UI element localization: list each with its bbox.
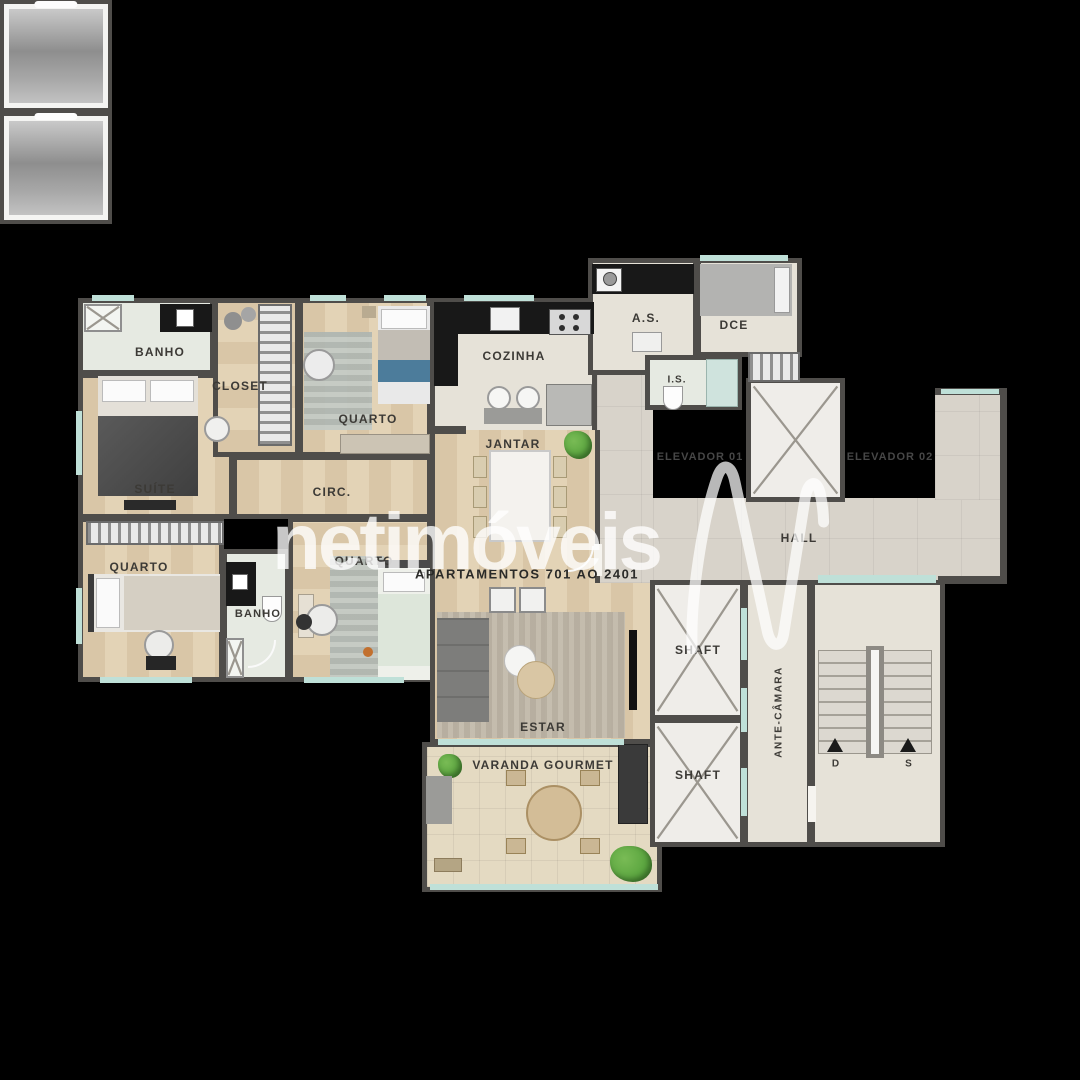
window-sill bbox=[384, 295, 426, 301]
console bbox=[146, 656, 176, 670]
bed-blanket bbox=[124, 576, 220, 630]
bag bbox=[296, 614, 312, 630]
sink bbox=[232, 574, 248, 590]
room-label-jantar: JANTAR bbox=[486, 437, 541, 451]
x-brace-icon bbox=[228, 640, 242, 676]
armchair bbox=[519, 587, 546, 613]
sink bbox=[176, 309, 194, 327]
room-label-banho-2: BANHO bbox=[235, 608, 281, 620]
hall-bottom-wall bbox=[938, 576, 1007, 584]
stove bbox=[549, 309, 591, 335]
outdoor-chair bbox=[506, 838, 526, 854]
room-label-as: A.S. bbox=[632, 311, 660, 325]
stair-flight-left bbox=[818, 650, 868, 754]
bed-pillow bbox=[774, 267, 790, 313]
dresser bbox=[340, 434, 430, 454]
window-sill bbox=[92, 295, 134, 301]
window-sill bbox=[76, 411, 82, 475]
sink bbox=[490, 307, 520, 331]
stairs-up-arrow-icon bbox=[900, 738, 916, 752]
outdoor-chair bbox=[506, 770, 526, 786]
stool bbox=[487, 386, 511, 410]
closet-pouf bbox=[224, 312, 242, 330]
window-sill bbox=[700, 255, 788, 261]
stairs-down-label: D bbox=[832, 759, 840, 770]
armchair bbox=[489, 587, 516, 613]
bed-pillow bbox=[381, 309, 427, 329]
bed-headboard bbox=[88, 574, 94, 632]
outdoor-table bbox=[526, 785, 582, 841]
room-label-elevador-2: ELEVADOR 02 bbox=[847, 451, 934, 463]
plant-icon bbox=[564, 431, 592, 459]
floor-plan-image: BANHO CLOSET QUARTO SUÍTE CIRC. QUARTO B… bbox=[0, 0, 1080, 1080]
coffee-table bbox=[517, 661, 555, 699]
bed-pillow bbox=[96, 578, 120, 628]
window-sill bbox=[941, 389, 999, 394]
x-brace-icon bbox=[86, 306, 120, 330]
room-label-cozinha: COZINHA bbox=[482, 349, 545, 363]
shower-box bbox=[226, 638, 244, 678]
window-sill bbox=[818, 575, 936, 583]
hall-right-wing bbox=[935, 390, 1005, 500]
dce-wardrobe bbox=[748, 352, 800, 382]
room-label-estar: ESTAR bbox=[520, 720, 566, 734]
room-label-suite: SUÍTE bbox=[134, 482, 175, 496]
room-label-quarto-2: QUARTO bbox=[110, 560, 169, 574]
kitchen-counter bbox=[434, 334, 458, 386]
tv-console bbox=[124, 500, 176, 510]
closet-wardrobe bbox=[258, 304, 292, 446]
window-sill bbox=[438, 739, 624, 745]
stairs-down-arrow-icon bbox=[827, 738, 843, 752]
cabinet bbox=[546, 384, 592, 426]
side-table bbox=[434, 858, 462, 872]
bed-sheet bbox=[378, 330, 430, 360]
room-label-banho-suite: BANHO bbox=[135, 345, 185, 359]
plant-icon bbox=[610, 846, 652, 882]
window-sill bbox=[76, 588, 82, 644]
tv bbox=[629, 630, 637, 710]
stair-door-gap bbox=[808, 786, 816, 822]
room-label-dce: DCE bbox=[720, 318, 749, 332]
bed-blanket bbox=[378, 360, 430, 382]
chair bbox=[204, 416, 230, 442]
stairs-up-label: S bbox=[905, 759, 913, 770]
room-shaft-2 bbox=[650, 718, 745, 847]
window-sill bbox=[741, 688, 747, 732]
elevator-1 bbox=[0, 0, 112, 112]
plant-icon bbox=[438, 754, 462, 778]
elevator-1-cab bbox=[9, 9, 103, 103]
room-label-quarto-1: QUARTO bbox=[339, 412, 398, 426]
nightstand bbox=[362, 306, 376, 318]
bed-blanket bbox=[378, 594, 430, 666]
bed-pillow bbox=[102, 380, 146, 402]
elevator-1-door bbox=[34, 1, 77, 8]
bed-pillow bbox=[150, 380, 194, 402]
lamp bbox=[363, 647, 373, 657]
outdoor-chair bbox=[580, 770, 600, 786]
dining-chair bbox=[473, 456, 487, 478]
bench bbox=[426, 776, 452, 824]
grill-counter bbox=[618, 744, 648, 824]
chair bbox=[303, 349, 335, 381]
stool bbox=[516, 386, 540, 410]
cozinha-jantar-wall-stub bbox=[430, 426, 466, 434]
elevator-2 bbox=[0, 112, 112, 224]
window-sill bbox=[464, 295, 534, 301]
tub bbox=[632, 332, 662, 352]
window-sill bbox=[430, 884, 658, 890]
wardrobe bbox=[86, 521, 224, 545]
shower-box bbox=[706, 359, 738, 407]
outdoor-chair bbox=[580, 838, 600, 854]
stove-burners-icon bbox=[559, 314, 565, 320]
x-brace-icon bbox=[655, 723, 740, 842]
room-label-closet: CLOSET bbox=[212, 379, 268, 393]
room-label-shaft-2: SHAFT bbox=[675, 768, 721, 782]
toilet bbox=[663, 386, 683, 410]
elevator-2-door bbox=[34, 113, 77, 120]
washer-door-icon bbox=[603, 272, 617, 286]
elevator-2-cab bbox=[9, 121, 103, 215]
window-sill bbox=[100, 677, 192, 683]
dining-chair bbox=[553, 456, 567, 478]
room-label-is: I.S. bbox=[667, 375, 686, 386]
window-sill bbox=[304, 677, 404, 683]
hall-right-wall bbox=[1000, 390, 1007, 583]
sofa bbox=[437, 618, 489, 722]
closet-pouf bbox=[241, 307, 256, 322]
shower-box bbox=[84, 304, 122, 332]
window-sill bbox=[310, 295, 346, 301]
watermark-text: netimóveis bbox=[272, 502, 660, 582]
room-label-varanda: VARANDA GOURMET bbox=[472, 758, 613, 772]
stair-rail-inner bbox=[871, 650, 879, 754]
bench bbox=[484, 408, 542, 424]
room-label-ante-camara: ANTE-CÂMARA bbox=[774, 666, 785, 758]
window-sill bbox=[741, 768, 747, 816]
